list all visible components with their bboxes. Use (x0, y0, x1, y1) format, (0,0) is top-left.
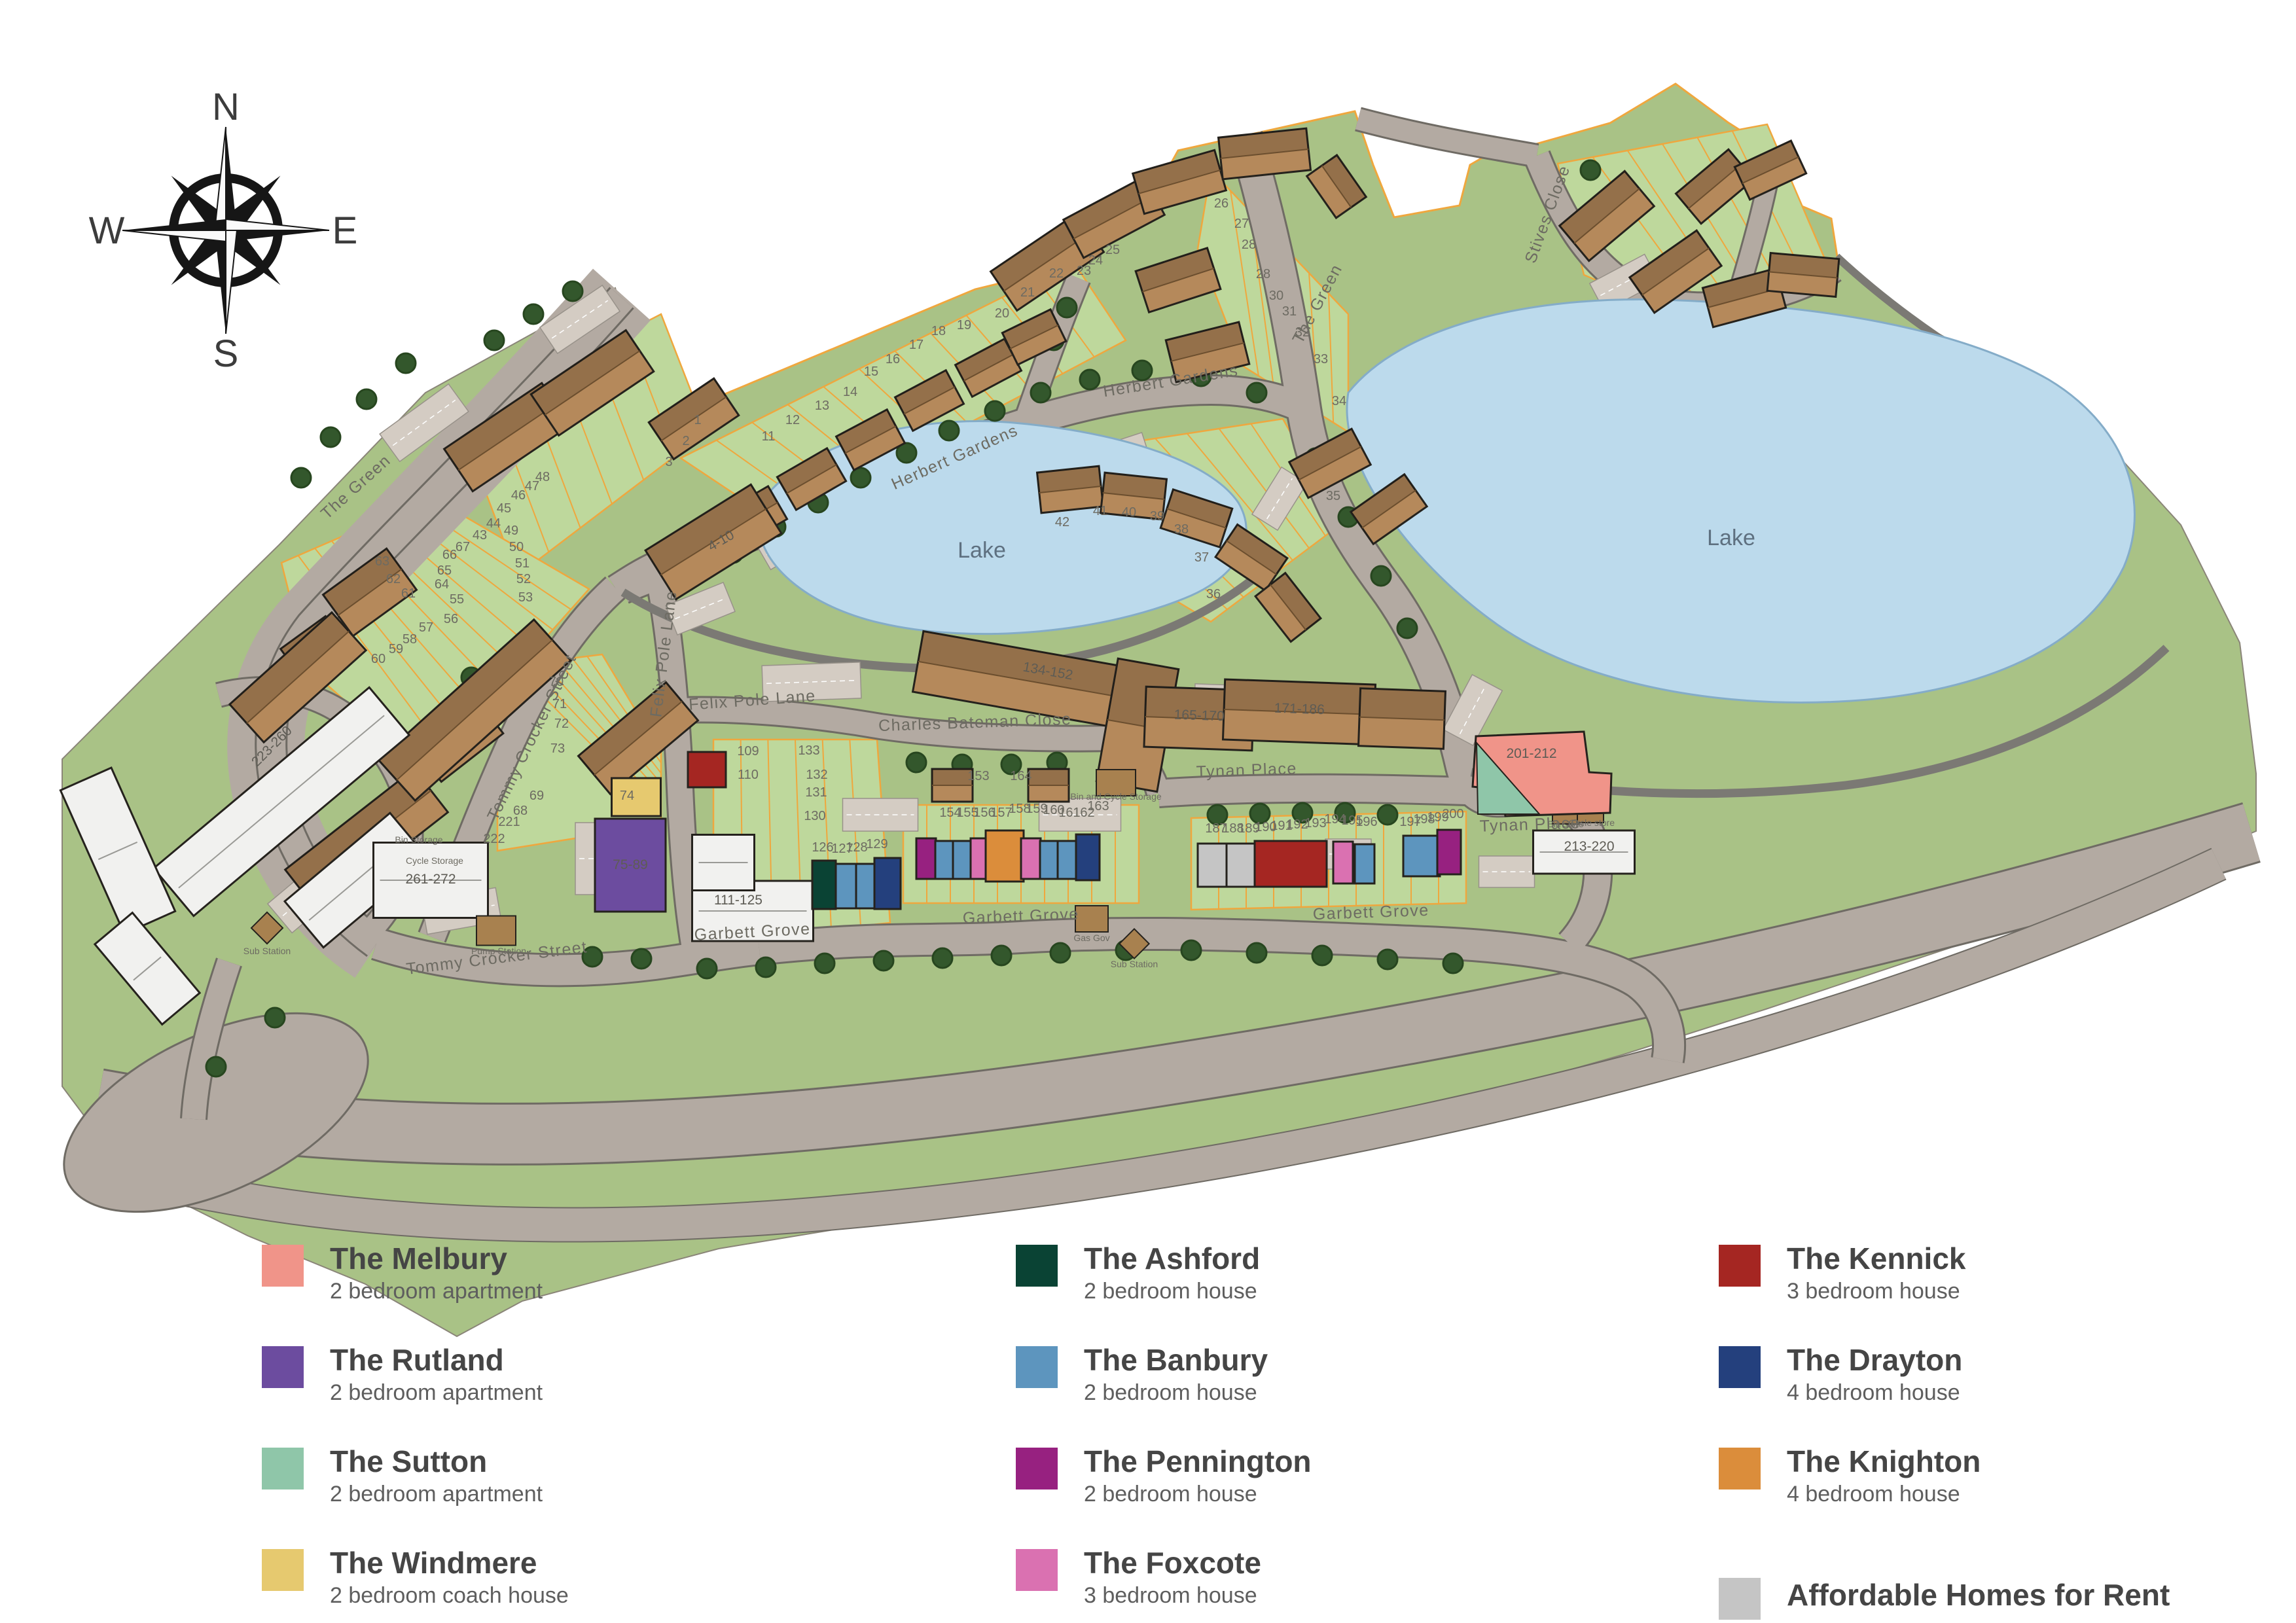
compass-rose-icon: N E S W (89, 86, 358, 375)
tree-icon (1031, 383, 1050, 402)
building-range-label: 75-89 (613, 857, 648, 872)
plot-number: 22 (1049, 266, 1064, 281)
house-kennick (688, 752, 726, 787)
tree-icon (1050, 943, 1070, 963)
compass-south-label: S (213, 332, 239, 375)
plot-number: 46 (511, 488, 526, 503)
plot-number: 69 (529, 789, 544, 803)
plot-number: 42 (1055, 515, 1069, 529)
plot-number: 44 (486, 516, 501, 531)
plot-number: 26 (1214, 196, 1229, 211)
plot-number: 66 (442, 548, 457, 562)
plot-number: 35 (1326, 489, 1340, 503)
tree-icon (874, 951, 893, 971)
house-foxcote (1021, 838, 1041, 879)
plot-number: 15 (864, 365, 878, 379)
tree-icon (697, 959, 717, 978)
house-affordable (1227, 844, 1255, 887)
plot-number: 72 (554, 717, 569, 731)
amenity-label: Cycle store (1569, 817, 1615, 828)
house-ashford (812, 861, 836, 909)
tree-icon (1181, 940, 1201, 960)
tree-icon (1371, 566, 1391, 586)
plot-number: 24 (1088, 253, 1103, 268)
plot-number: 56 (444, 612, 458, 626)
plot-number: 196 (1355, 815, 1377, 829)
plot-number: 221 (498, 815, 520, 829)
generated-map-layers: The GreenThe GreenTommy Crocker StreetTo… (35, 84, 2256, 1336)
plot-number: 57 (419, 620, 433, 635)
plot-number: 132 (806, 768, 827, 782)
plot-number: 51 (515, 556, 529, 571)
plot-number: 58 (403, 632, 417, 647)
plot-number: 50 (509, 540, 524, 554)
tree-icon (939, 421, 959, 440)
tree-icon (357, 389, 376, 409)
plot-number: 17 (909, 338, 924, 352)
tree-icon (1247, 943, 1266, 963)
house-brown (1028, 769, 1069, 802)
house-banbury (836, 864, 857, 908)
tree-icon (1080, 370, 1100, 389)
plot-number: 129 (866, 837, 888, 851)
tree-icon (632, 949, 651, 969)
house-banbury (1355, 844, 1374, 883)
house-kennick (1255, 841, 1327, 887)
tree-icon (1581, 160, 1600, 180)
plot-number: 13 (815, 399, 829, 413)
street-label: Tynan Place (1196, 759, 1297, 781)
plot-number: 12 (785, 413, 800, 427)
house-brown (932, 769, 973, 802)
plot-number: 163 (1087, 799, 1109, 813)
house-pennington (916, 838, 936, 879)
plot-number: 16 (886, 352, 900, 366)
house-banbury (935, 841, 954, 879)
plot-number: 65 (437, 563, 452, 578)
plot-number: 37 (1194, 550, 1209, 565)
plot-number: 38 (1174, 522, 1189, 537)
plot-number: 109 (737, 744, 759, 758)
building-range-label: 165-170 (1174, 707, 1225, 724)
plot-number: 25 (1105, 243, 1120, 257)
plot-number: 63 (375, 554, 389, 569)
plot-number: 1 (694, 413, 701, 427)
amenity-label: Cycle Storage (406, 855, 463, 866)
house-drayton (874, 858, 901, 909)
compass-west-label: W (89, 209, 125, 252)
parking-bay (1479, 856, 1535, 887)
plot-number: 34 (1332, 394, 1346, 408)
plot-number: 32 (1295, 325, 1310, 340)
plot-number: 193 (1304, 816, 1326, 830)
house-banbury (1040, 841, 1058, 879)
amenity-label: Bin Storage (395, 834, 442, 845)
plot-number: 2 (682, 434, 689, 448)
tree-icon (396, 353, 416, 373)
compass-main-star (122, 127, 329, 334)
plot-number: 62 (386, 572, 401, 586)
house-pennington (1437, 830, 1461, 874)
plot-number: 3 (665, 455, 672, 469)
amenity-label: Sub Station (1111, 959, 1158, 969)
plot-number: 39 (1150, 509, 1164, 524)
house-knighton (986, 830, 1024, 882)
tree-icon (815, 954, 834, 973)
plot-number: 52 (516, 572, 531, 586)
tree-icon (1378, 805, 1397, 825)
tree-icon (906, 753, 926, 772)
house-brown (1219, 128, 1311, 179)
plot-number: 133 (798, 743, 819, 758)
plot-number: 48 (535, 470, 550, 484)
plot-number: 36 (1206, 587, 1221, 601)
plot-number: 60 (371, 652, 386, 666)
tree-icon (985, 401, 1005, 421)
tree-icon (206, 1057, 226, 1077)
house-windmere (612, 778, 661, 816)
plot-number: 31 (1282, 304, 1297, 319)
house-shed (1075, 906, 1108, 932)
house-affordable (1198, 844, 1227, 887)
house-shed (476, 916, 516, 946)
tree-icon (291, 468, 311, 488)
tree-icon (484, 330, 504, 350)
house-foxcote (1333, 842, 1353, 883)
tree-icon (321, 427, 340, 447)
tree-icon (1312, 946, 1332, 965)
tree-icon (1057, 298, 1077, 317)
building-range-label: 201-212 (1506, 746, 1556, 761)
plot-number: 45 (497, 501, 511, 516)
plot-number: 28 (1242, 238, 1256, 252)
tree-icon (992, 946, 1011, 965)
plot-number: 64 (435, 577, 449, 592)
plot-number: 200 (1442, 807, 1463, 821)
amenity-label: Bin and Cycle Storage (1070, 791, 1162, 802)
plot-number: 70 (549, 675, 564, 689)
plot-number: 30 (1269, 289, 1283, 303)
plot-number: 131 (805, 785, 827, 800)
lake-label: Lake (958, 538, 1006, 563)
house-banbury (1403, 836, 1440, 876)
plot-number: 40 (1122, 505, 1136, 520)
plot-number: 28 (1256, 267, 1270, 281)
plot-number: 27 (1234, 217, 1249, 231)
plot-number: 61 (401, 586, 416, 601)
plot-number: 222 (483, 832, 505, 846)
plot-number: 41 (1093, 504, 1107, 518)
house-banbury (953, 841, 971, 879)
house-drayton (1076, 834, 1100, 880)
amenity-label: Sub Station (243, 946, 291, 956)
plot-number: 18 (931, 324, 946, 338)
plot-number: 110 (738, 768, 759, 782)
plot-number: 128 (846, 840, 867, 855)
plot-number: 55 (450, 592, 464, 607)
compass-east-label: E (332, 209, 358, 252)
compass-north-label: N (212, 86, 240, 128)
amenity-label: Pump Station (471, 946, 526, 956)
plot-number: 71 (552, 697, 567, 711)
plot-number: 130 (804, 809, 825, 823)
plot-number: 153 (967, 769, 989, 783)
tree-icon (1397, 618, 1417, 638)
house-white (692, 835, 755, 891)
plot-number: 33 (1314, 352, 1328, 366)
plot-number: 74 (620, 789, 634, 803)
plot-number: 20 (995, 306, 1009, 321)
building-range-label: 111-125 (714, 893, 762, 908)
plot-number: 164 (1010, 769, 1031, 783)
tree-icon (1247, 383, 1266, 402)
lake-label: Lake (1707, 526, 1755, 550)
house-brown (1359, 688, 1446, 749)
building-range-label: 213-220 (1564, 839, 1614, 854)
building-range-label: 171-186 (1274, 701, 1325, 718)
plot-number: 59 (389, 642, 403, 656)
tree-icon (524, 304, 543, 324)
house-banbury (1058, 841, 1076, 879)
plot-number: 49 (504, 524, 518, 538)
tree-icon (933, 948, 952, 968)
parking-bay (843, 798, 918, 831)
site-plan-page: The GreenThe GreenTommy Crocker StreetTo… (0, 0, 2296, 1623)
site-plan-map: The GreenThe GreenTommy Crocker StreetTo… (0, 0, 2296, 1623)
building-range-label: 261-272 (405, 872, 456, 887)
plot-number: 19 (957, 318, 971, 332)
amenity-label: Gas Gov (1073, 933, 1109, 943)
plot-number: 53 (518, 590, 533, 605)
plot-number: 43 (473, 528, 487, 543)
tree-icon (756, 957, 776, 977)
house-brown (1767, 253, 1839, 297)
plot-number: 11 (762, 429, 776, 444)
tree-icon (563, 281, 583, 301)
plot-number: 126 (812, 840, 833, 855)
plot-number: 21 (1020, 285, 1035, 300)
plot-number: 73 (550, 741, 565, 756)
plot-number: 14 (843, 385, 857, 399)
tree-icon (265, 1008, 285, 1027)
tree-icon (1378, 950, 1397, 969)
plot-number: 67 (456, 540, 470, 554)
tree-icon (1443, 954, 1463, 973)
